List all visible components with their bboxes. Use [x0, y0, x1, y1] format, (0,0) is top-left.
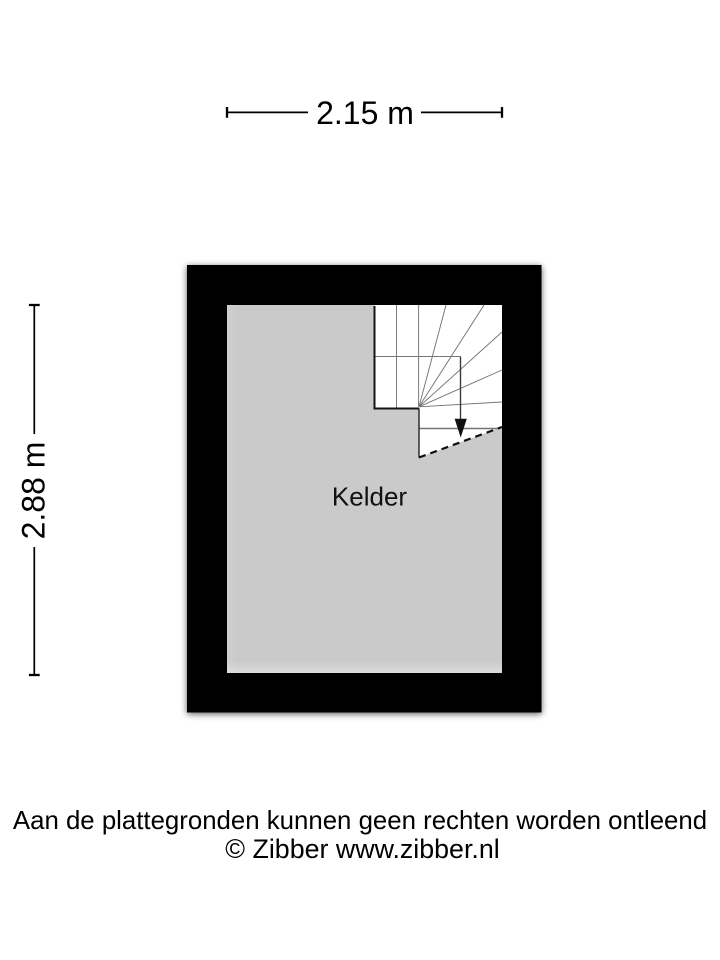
svg-text:2.15 m: 2.15 m [316, 95, 414, 131]
svg-text:Kelder: Kelder [332, 482, 407, 512]
svg-text:Aan de plattegronden kunnen ge: Aan de plattegronden kunnen geen rechten… [13, 807, 707, 835]
svg-text:© Zibber www.zibber.nl: © Zibber www.zibber.nl [225, 834, 499, 864]
svg-text:2.88 m: 2.88 m [16, 442, 52, 540]
